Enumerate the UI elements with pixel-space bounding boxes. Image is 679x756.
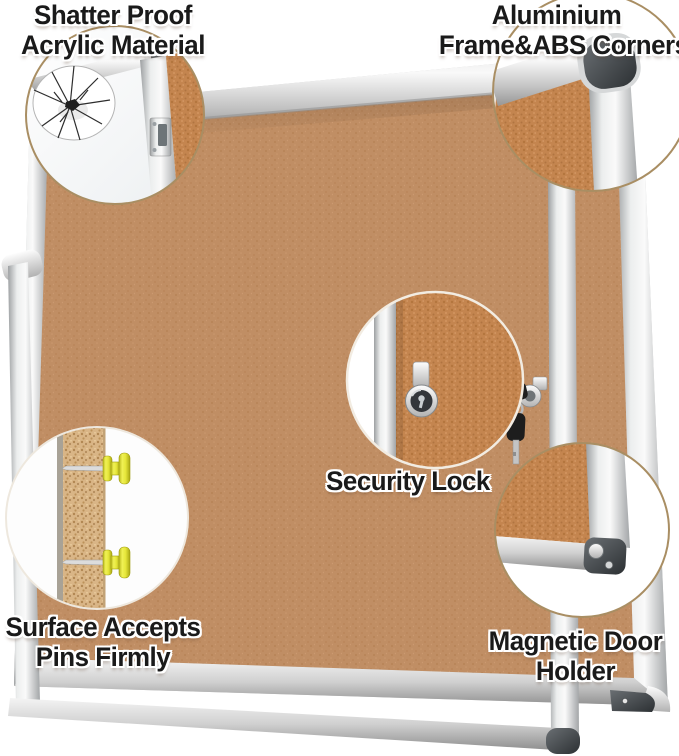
label-line: Holder: [476, 656, 675, 686]
label-line: Security Lock: [316, 466, 500, 496]
label-surface-accepts-pins: Surface Accepts Pins Firmly: [4, 612, 202, 672]
shatter-crack-icon: [33, 66, 115, 140]
corner-screw: [622, 698, 627, 703]
abs-corner-magnified: [583, 537, 627, 575]
callout-magnet-circle: [494, 442, 669, 617]
cork-cross-section: [63, 427, 105, 609]
label-line: Frame&ABS Corners: [439, 30, 674, 60]
callout-pins-circle: [6, 427, 188, 609]
label-line: Shatter Proof: [5, 0, 222, 30]
corner-screw: [605, 561, 613, 569]
product-feature-image: Shatter Proof Acrylic Material Aluminium…: [0, 0, 679, 756]
magnet-dot: [589, 544, 604, 559]
label-security-lock: Security Lock: [316, 466, 500, 496]
label-line: Magnetic Door: [476, 626, 675, 656]
label-line: Surface Accepts: [4, 612, 202, 642]
door-corner-cap-bottom-right: [546, 728, 580, 754]
board-backing: [57, 427, 63, 609]
label-magnetic-door-holder: Magnetic Door Holder: [476, 626, 675, 686]
label-shatter-proof: Shatter Proof Acrylic Material: [5, 0, 222, 60]
label-line: Aluminium: [439, 0, 674, 30]
door-bottom-bar: [8, 698, 580, 754]
label-aluminium-frame: Aluminium Frame&ABS Corners: [439, 0, 674, 60]
label-line: Acrylic Material: [5, 30, 222, 60]
hinge: [150, 118, 171, 156]
side-frame-magnified: [586, 442, 630, 548]
label-line: Pins Firmly: [4, 642, 202, 672]
